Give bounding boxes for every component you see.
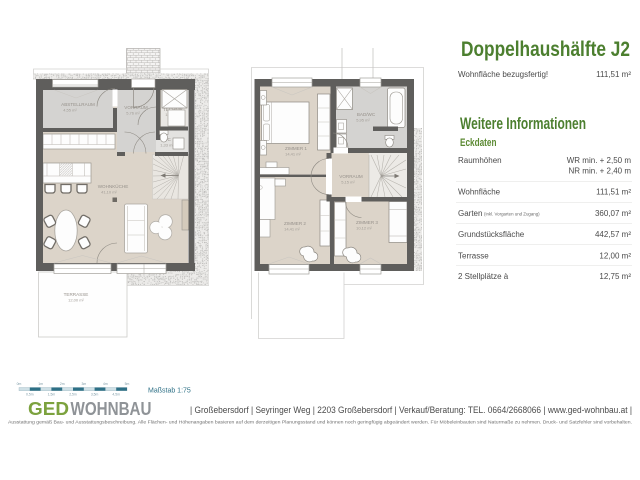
svg-text:VORRAUM: VORRAUM bbox=[339, 174, 363, 179]
svg-text:Raumhöhen: Raumhöhen bbox=[458, 156, 502, 165]
svg-text:BAD/WC: BAD/WC bbox=[357, 112, 376, 117]
svg-text:360,07 m²: 360,07 m² bbox=[595, 209, 631, 218]
svg-text:Terrasse: Terrasse bbox=[458, 252, 489, 261]
svg-text:1,33 m²: 1,33 m² bbox=[160, 143, 174, 148]
svg-text:Ausstattung gemäß Bau- und Aus: Ausstattung gemäß Bau- und Ausstattungsb… bbox=[8, 420, 632, 425]
svg-text:5,76 m²: 5,76 m² bbox=[126, 111, 140, 116]
svg-text:1m: 1m bbox=[38, 382, 43, 386]
svg-text:5m: 5m bbox=[125, 382, 130, 386]
svg-text:1,5m: 1,5m bbox=[48, 393, 56, 397]
svg-text:5,95 m²: 5,95 m² bbox=[356, 118, 370, 123]
svg-text:0,5m: 0,5m bbox=[26, 393, 34, 397]
svg-text:Weitere Informationen: Weitere Informationen bbox=[460, 115, 586, 133]
svg-text:WOHNBAU: WOHNBAU bbox=[71, 399, 152, 419]
svg-text:| Großebersdorf | Seyringer We: | Großebersdorf | Seyringer Weg | 2203 G… bbox=[190, 405, 632, 415]
svg-text:Wohnfläche: Wohnfläche bbox=[458, 188, 501, 197]
svg-text:Wohnfläche bezugsfertig!: Wohnfläche bezugsfertig! bbox=[458, 70, 548, 79]
svg-text:4m: 4m bbox=[103, 382, 108, 386]
svg-text:111,51 m²: 111,51 m² bbox=[596, 188, 631, 197]
svg-text:14,41 m²: 14,41 m² bbox=[285, 152, 301, 157]
svg-text:12,75 m²: 12,75 m² bbox=[599, 272, 631, 281]
svg-text:ZIMMER 3: ZIMMER 3 bbox=[356, 220, 378, 225]
svg-text:111,51 m²: 111,51 m² bbox=[596, 70, 631, 79]
svg-text:Garten: Garten bbox=[458, 209, 482, 218]
svg-text:12,00 m²: 12,00 m² bbox=[68, 298, 84, 303]
svg-text:2 Stellplätze à: 2 Stellplätze à bbox=[458, 272, 509, 281]
svg-text:3,5m: 3,5m bbox=[91, 393, 99, 397]
svg-text:WR min. + 2,50 m: WR min. + 2,50 m bbox=[567, 156, 632, 165]
svg-text:TERRASSE: TERRASSE bbox=[64, 292, 89, 297]
svg-text:WOHNKÜCHE: WOHNKÜCHE bbox=[98, 183, 129, 189]
svg-text:442,57 m²: 442,57 m² bbox=[595, 230, 631, 239]
svg-text:2m: 2m bbox=[60, 382, 65, 386]
svg-text:41,10 m²: 41,10 m² bbox=[101, 190, 117, 195]
svg-text:ZIMMER 2: ZIMMER 2 bbox=[284, 221, 306, 226]
svg-text:GED: GED bbox=[28, 399, 69, 419]
svg-text:ZIMMER 1: ZIMMER 1 bbox=[285, 146, 307, 151]
svg-text:ABSTELLRAUM: ABSTELLRAUM bbox=[61, 102, 95, 107]
svg-text:(inkl. Vorgarten und Zugang): (inkl. Vorgarten und Zugang) bbox=[484, 212, 540, 217]
svg-text:4,5m: 4,5m bbox=[112, 393, 120, 397]
svg-text:Eckdaten: Eckdaten bbox=[460, 137, 497, 149]
svg-text:5,15 m²: 5,15 m² bbox=[341, 180, 355, 185]
svg-text:NR min. + 2,40 m: NR min. + 2,40 m bbox=[569, 167, 632, 176]
svg-text:Maßstab 1:75: Maßstab 1:75 bbox=[148, 388, 191, 395]
svg-text:0m: 0m bbox=[17, 382, 22, 386]
svg-text:14,41 m²: 14,41 m² bbox=[284, 227, 300, 232]
svg-text:Doppelhaushälfte J2: Doppelhaushälfte J2 bbox=[461, 37, 630, 61]
svg-text:4,55 m²: 4,55 m² bbox=[63, 108, 77, 113]
svg-text:Grundstücksfläche: Grundstücksfläche bbox=[458, 230, 525, 239]
svg-text:10,12 m²: 10,12 m² bbox=[356, 226, 372, 231]
svg-text:2,5m: 2,5m bbox=[69, 393, 77, 397]
svg-text:3m: 3m bbox=[81, 382, 86, 386]
svg-text:12,00 m²: 12,00 m² bbox=[599, 252, 631, 261]
